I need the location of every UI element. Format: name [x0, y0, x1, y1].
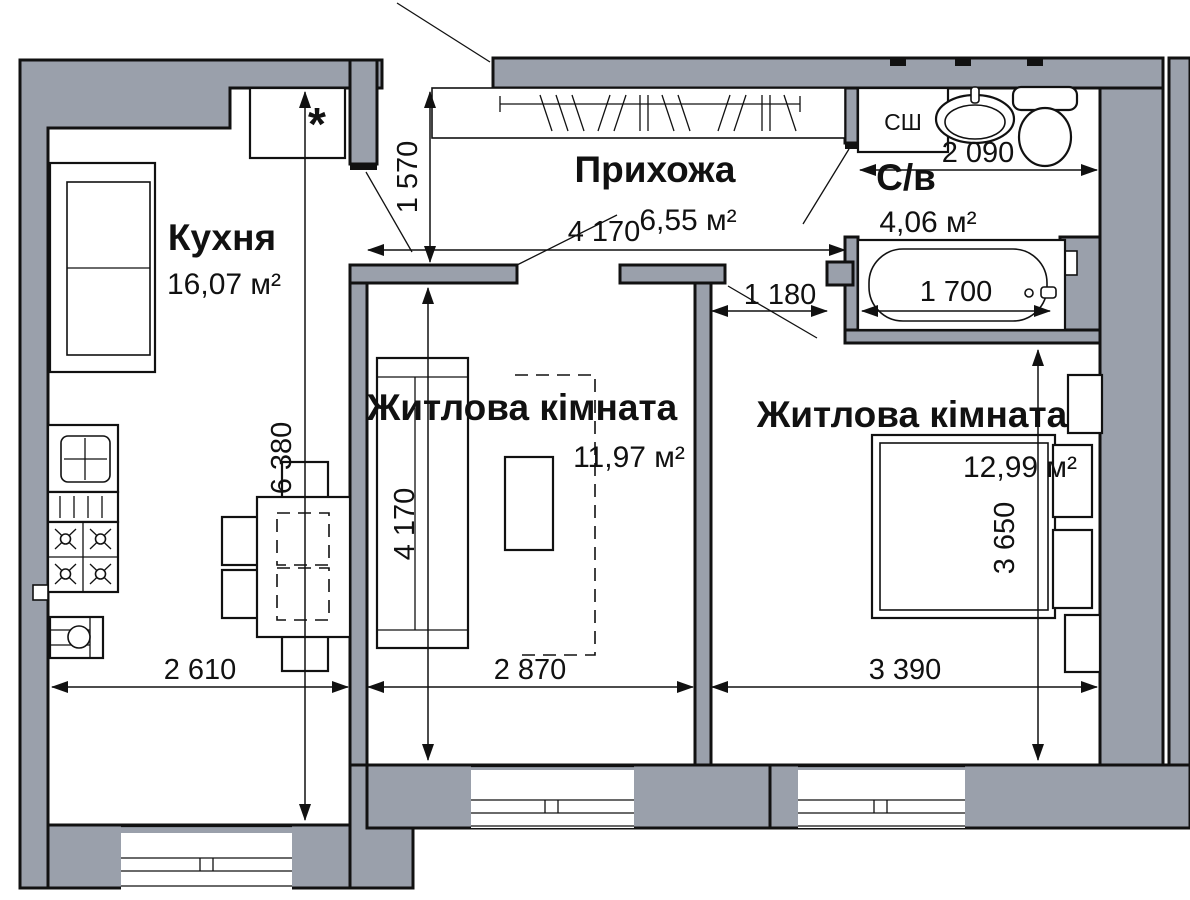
kitchen-sink [48, 425, 118, 492]
dim-living1-width: 2 870 [494, 654, 567, 686]
vent-mark [890, 58, 906, 66]
fridge-cabinet [50, 163, 155, 372]
entrance-leader [397, 3, 490, 62]
dim-kitchen-width: 2 610 [164, 654, 237, 686]
dim-kitchen-depth: 6 380 [266, 422, 298, 495]
room-area-kitchen: 16,07 м² [167, 268, 281, 301]
chair [222, 570, 258, 618]
dim-bathtub-length: 1 700 [920, 276, 993, 308]
dim-hallway-height: 1 570 [392, 141, 424, 214]
room-area-living2: 12,99 м² [963, 451, 1077, 484]
toilet [1013, 87, 1077, 166]
closet-asterisk-mark: * [308, 98, 326, 150]
dim-hallway-width: 4 170 [568, 216, 641, 248]
kitchen-window [121, 827, 292, 891]
dim-living1-depth: 4 170 [389, 488, 421, 561]
room-area-bathroom: 4,06 м² [879, 206, 976, 239]
vent-mark [955, 58, 971, 66]
dim-bedroom-entry: 1 180 [744, 279, 817, 311]
duct-cabinet-label: СШ [884, 109, 922, 135]
dim-living2-width: 3 390 [869, 654, 942, 686]
room-label-kitchen: Кухня [168, 217, 276, 258]
room-label-bathroom: С/в [876, 157, 936, 198]
dining-table [257, 497, 350, 637]
bathroom-door-leader [803, 149, 849, 224]
chair [222, 517, 258, 565]
floor-plan-page: * [0, 0, 1190, 900]
dim-living2-depth: 3 650 [989, 502, 1021, 575]
room-area-hallway: 6,55 м² [639, 204, 736, 237]
living2-window [798, 767, 965, 829]
stove [48, 522, 118, 592]
wall-vent-box [33, 585, 48, 600]
dim-bathroom-width: 2 090 [942, 137, 1015, 169]
room-label-living2: Житлова кімната [756, 394, 1068, 435]
room-label-living1: Житлова кімната [366, 387, 678, 428]
shelf [1068, 375, 1102, 433]
nightstand [1053, 530, 1092, 608]
vent-mark [1027, 58, 1043, 66]
drying-rack [48, 492, 118, 522]
kitchen-closet: * [250, 88, 345, 158]
room-area-living1: 11,97 м² [573, 441, 685, 474]
floor-plan: * [0, 0, 1190, 900]
tv-stand [505, 457, 553, 550]
tub-faucet-icon [1041, 287, 1056, 298]
washing-machine [50, 617, 103, 658]
faucet-icon [971, 87, 979, 103]
shelf [1065, 615, 1100, 672]
living1-window [471, 767, 634, 829]
drain-icon [1025, 289, 1033, 297]
kitchen-furniture: * [33, 88, 350, 671]
room-label-hallway: Прихожа [575, 149, 736, 190]
duct-cabinet: СШ [858, 88, 948, 152]
hall-wardrobe [432, 88, 845, 138]
